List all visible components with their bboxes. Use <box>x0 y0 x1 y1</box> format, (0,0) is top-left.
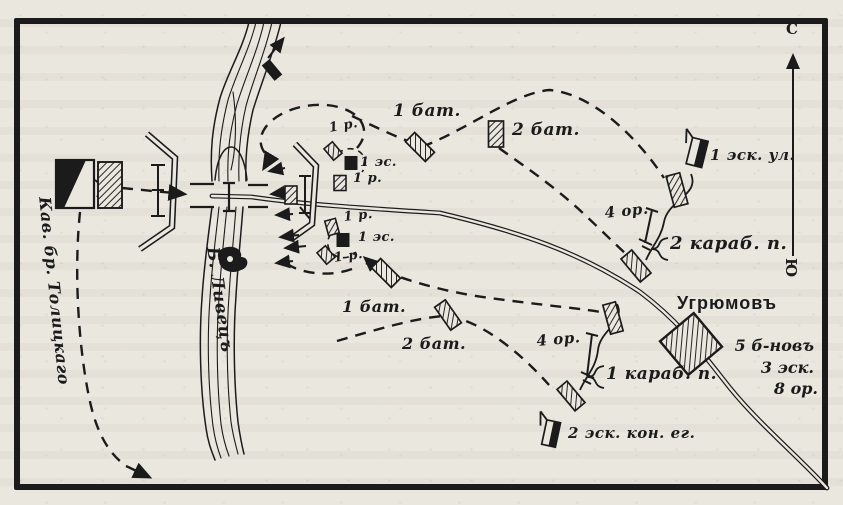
position-2-karab <box>621 173 693 282</box>
unit-rota-2 <box>334 176 346 191</box>
river <box>200 22 281 460</box>
compass-north: С <box>786 20 798 38</box>
label-rota-2: 1 р. <box>353 172 382 185</box>
unit-eskadron-1 <box>345 157 357 170</box>
brace-2-karab <box>652 238 668 260</box>
unit-rota-1 <box>324 142 342 161</box>
unit-rota-4 <box>317 246 335 265</box>
label-south-bat2: 2 бат. <box>402 336 466 352</box>
unit-eskadron-2 <box>337 234 349 247</box>
compass-south: Ю <box>782 258 800 277</box>
route-north-bat2 <box>499 148 626 254</box>
unit-2karab-bat-b <box>621 250 651 282</box>
label-eskadron-1: 1 эс. <box>360 156 397 169</box>
unit-1karab-bat-b <box>557 381 585 411</box>
garrison-squadrons: 3 эск. <box>696 358 814 377</box>
label-north-bat1: 1 бат. <box>393 103 461 120</box>
garrison-guns: 8 ор. <box>700 379 818 398</box>
route-retreat-arc <box>287 264 352 274</box>
label-north-bat2: 2 бат. <box>512 122 580 139</box>
label-uhlan-squadron: 1 эск. ул. <box>710 148 795 163</box>
route-cavalry-brigade <box>77 212 149 477</box>
unit-south-bat2 <box>435 300 462 330</box>
label-regiment-2karab: 2 караб. п. <box>670 235 787 253</box>
unit-cavalry-brigade <box>56 160 100 208</box>
label-north-guns: 4 ор. <box>604 201 649 221</box>
label-rota-4: 1 р. <box>333 248 364 265</box>
unit-1karab-bat-a <box>603 302 623 334</box>
dam-symbol-west <box>151 165 165 216</box>
unit-north-bat1 <box>406 133 435 162</box>
label-rota-3: 1 р. <box>343 208 373 224</box>
unit-south-bat1 <box>372 259 401 288</box>
unit-west-infantry <box>98 162 122 208</box>
town-name: Угрюмовъ <box>677 293 777 314</box>
flag-jager-squadrons <box>534 411 562 447</box>
flag-uhlan-squadron <box>678 129 710 168</box>
unit-north-bat2 <box>489 121 504 147</box>
dam-symbol-east <box>299 176 311 219</box>
ford-mark <box>262 59 283 81</box>
label-south-guns: 4 ор. <box>536 330 581 349</box>
label-jager-squadrons: 2 эск. кон. ег. <box>568 426 695 441</box>
garrison-battalions: 5 б-новъ <box>696 336 814 355</box>
battle-map: С Ю Б. Ливецъ Кав. бр. Толицкаго 1 бат. … <box>0 0 843 505</box>
label-eskadron-2: 1 эс. <box>358 231 395 244</box>
label-south-bat1: 1 бат. <box>342 299 406 315</box>
unit-rota-near-bridge <box>285 186 297 204</box>
unit-2karab-bat-a <box>666 173 688 208</box>
position-1-karab <box>557 302 623 411</box>
